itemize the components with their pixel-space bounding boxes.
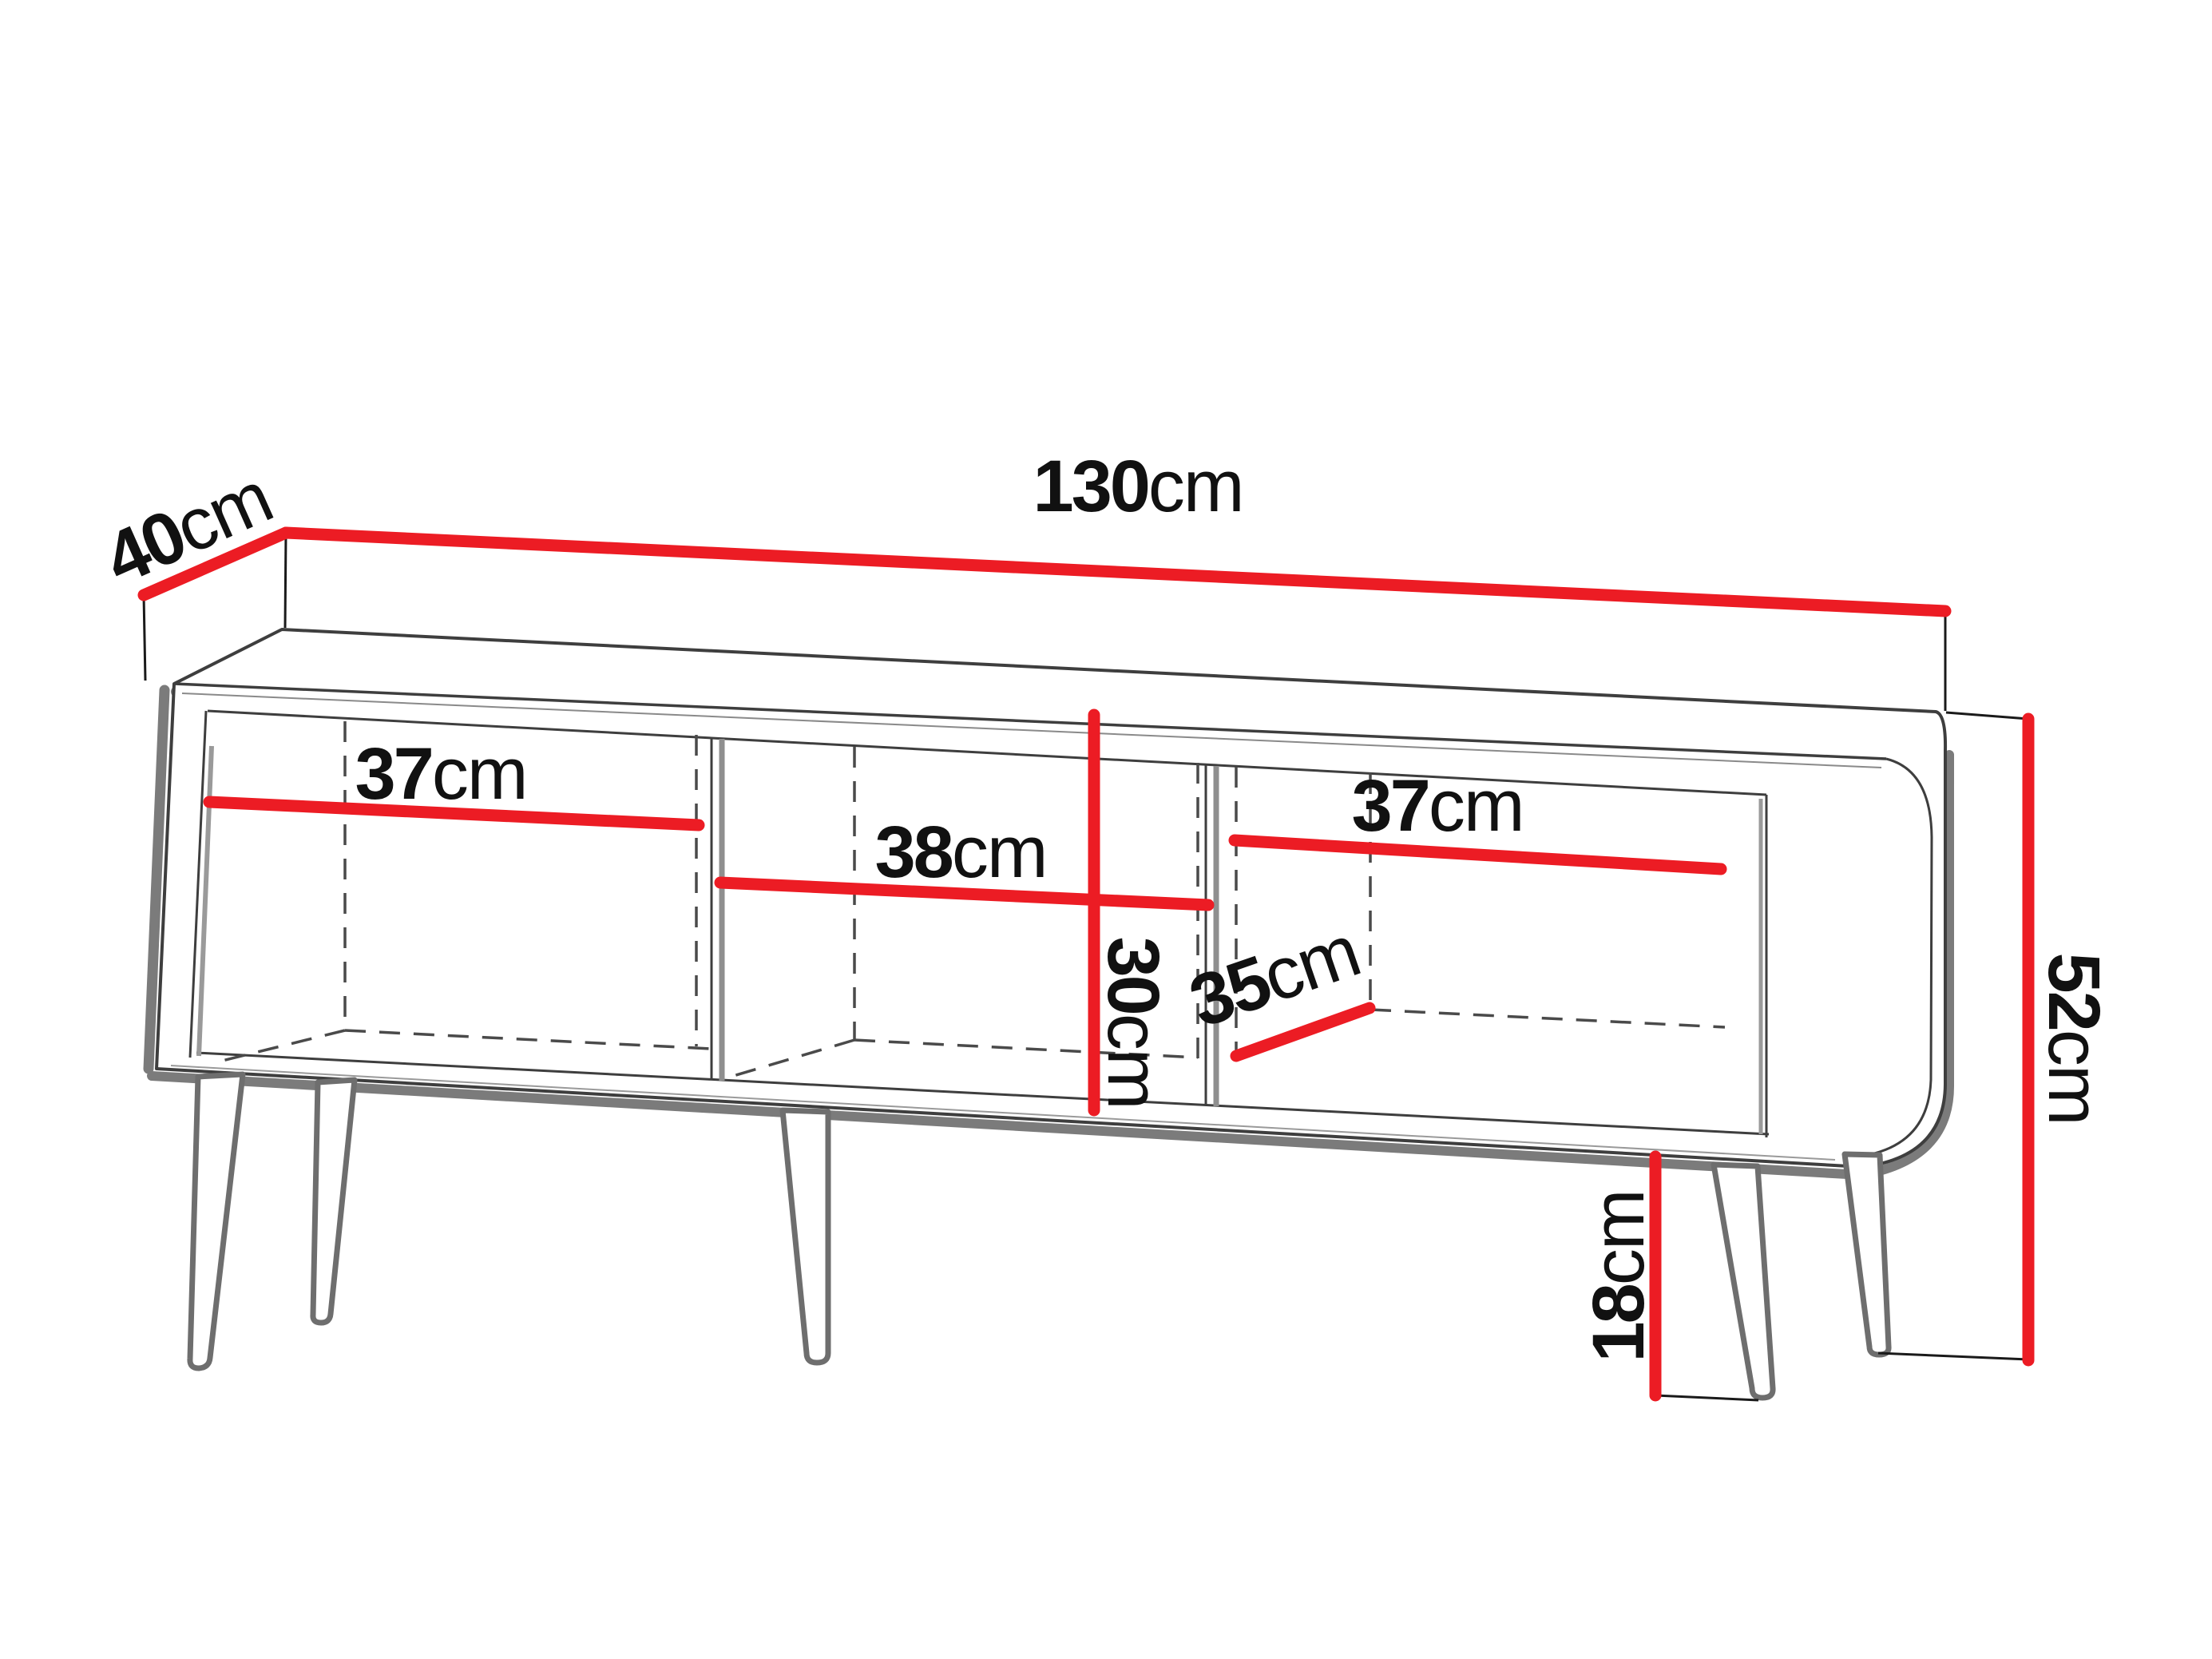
label-left-compartment-width: 37cm [355,733,527,815]
leg-front-left [190,1074,243,1368]
ext-depth-front [144,595,145,681]
label-height: 52cm [2033,953,2115,1125]
dim-line-width-130 [286,533,1945,611]
ext-leg-ground-left [1655,1395,1758,1400]
leg-back-left [313,1080,355,1323]
diagram-canvas: 40cm 130cm 52cm 37cm 38cm 37cm 30cm 35cm… [0,0,2212,1659]
ext-height-top [1946,712,2028,719]
label-width: 130cm [1033,446,1243,527]
furniture-dimension-drawing: 40cm 130cm 52cm 37cm 38cm 37cm 30cm 35cm… [0,0,2212,1659]
label-right-compartment-width: 37cm [1352,765,1524,847]
label-inner-height: 30cm [1092,937,1174,1109]
leg-front-middle [783,1110,828,1363]
label-leg-height: 18cm [1578,1191,1659,1363]
ext-height-ground [1878,1353,2028,1359]
leg-front-right [1714,1165,1773,1398]
leg-back-right [1845,1154,1889,1355]
ext-depth-back [285,533,286,628]
label-middle-compartment-width: 38cm [875,812,1047,893]
